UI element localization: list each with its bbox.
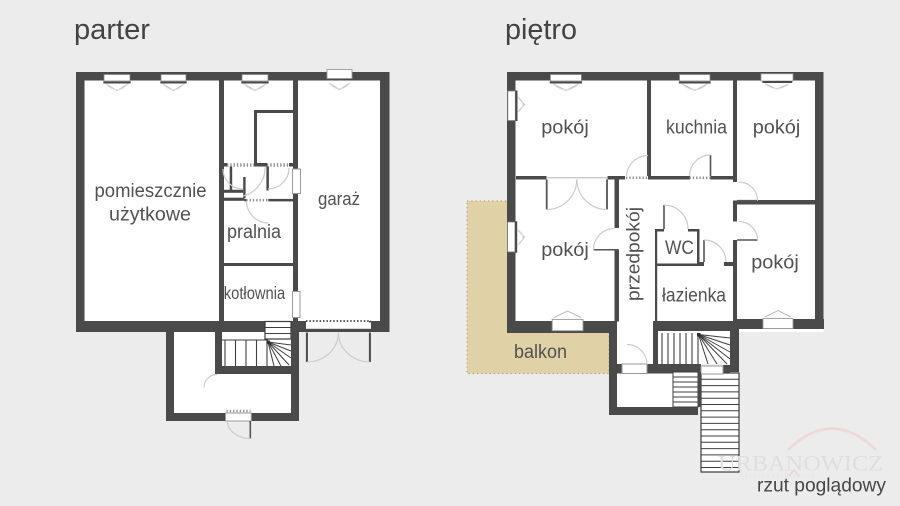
svg-text:kotłownia: kotłownia xyxy=(224,283,286,303)
svg-text:pokój: pokój xyxy=(541,240,589,261)
svg-text:balkon: balkon xyxy=(514,342,567,363)
svg-text:parter: parter xyxy=(74,14,150,46)
svg-text:garaż: garaż xyxy=(318,189,360,209)
svg-text:przedpokój: przedpokój xyxy=(623,207,644,301)
svg-text:pomieszcznie: pomieszcznie xyxy=(95,181,207,202)
svg-text:łazienka: łazienka xyxy=(662,286,726,307)
svg-text:rzut poglądowy: rzut poglądowy xyxy=(757,475,886,497)
svg-text:URBANOWICZ: URBANOWICZ xyxy=(718,451,883,476)
svg-text:pokój: pokój xyxy=(753,118,801,139)
svg-text:pralnia: pralnia xyxy=(227,222,281,243)
svg-text:pokój: pokój xyxy=(751,253,799,274)
svg-text:użytkowe: użytkowe xyxy=(109,205,191,226)
svg-text:WC: WC xyxy=(665,238,694,259)
svg-text:kuchnia: kuchnia xyxy=(666,118,727,139)
svg-text:piętro: piętro xyxy=(505,14,577,46)
svg-text:pokój: pokój xyxy=(541,118,589,139)
